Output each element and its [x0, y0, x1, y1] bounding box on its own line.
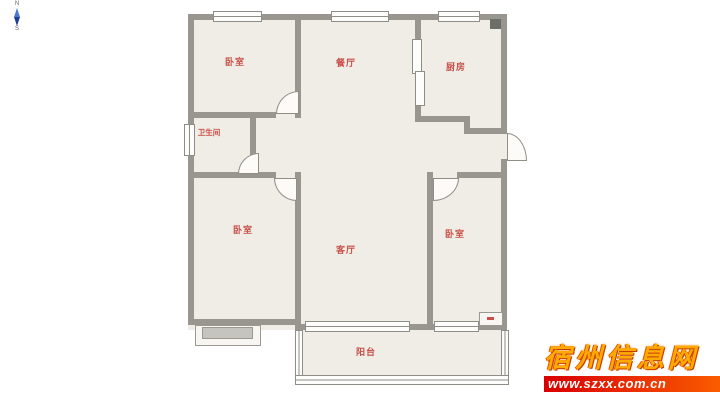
- ac-platform: [479, 312, 503, 326]
- room-label-bathroom: 卫生间: [198, 127, 221, 138]
- compass-needle-icon: [14, 17, 20, 26]
- wall: [501, 14, 507, 133]
- room-label-balcony: 阳台: [356, 345, 376, 358]
- watermark-site-name: 宿州信息网: [544, 342, 699, 376]
- room-label-bedroom-top-left: 卧室: [225, 55, 245, 68]
- ac-platform-mark: [487, 317, 494, 320]
- window: [184, 124, 195, 156]
- sliding-door-panel: [412, 39, 422, 74]
- window: [434, 321, 479, 332]
- wall: [415, 116, 470, 122]
- wall: [501, 159, 507, 330]
- watermark-url-banner: www.szxx.com.cn: [544, 376, 720, 392]
- window: [438, 11, 480, 22]
- room-label-kitchen: 厨房: [446, 60, 466, 73]
- bay-window-sill: [202, 327, 253, 339]
- wall: [188, 112, 276, 118]
- compass-north-label: N: [8, 1, 26, 8]
- wall: [188, 172, 276, 178]
- window: [501, 330, 509, 377]
- floor-plan-image: N S 卧室 餐厅 厨房 卫生间: [0, 0, 720, 405]
- wall: [188, 14, 194, 325]
- wall: [250, 112, 256, 158]
- compass-south-label: S: [8, 26, 26, 33]
- room-label-living: 客厅: [336, 243, 356, 256]
- wall: [457, 172, 507, 178]
- sliding-door-panel: [415, 71, 425, 106]
- window: [305, 321, 410, 332]
- window: [213, 11, 262, 22]
- flue-duct: [490, 19, 501, 29]
- room-label-bedroom-bottom-left: 卧室: [233, 223, 253, 236]
- compass: N S: [8, 1, 26, 33]
- entry-door-arc: [507, 133, 527, 161]
- room-label-dining: 餐厅: [336, 56, 356, 69]
- room-label-bedroom-right: 卧室: [445, 227, 465, 240]
- wall: [464, 128, 507, 134]
- window: [331, 11, 389, 22]
- window: [295, 330, 303, 377]
- window: [295, 375, 509, 385]
- compass-needle-icon: [14, 8, 20, 17]
